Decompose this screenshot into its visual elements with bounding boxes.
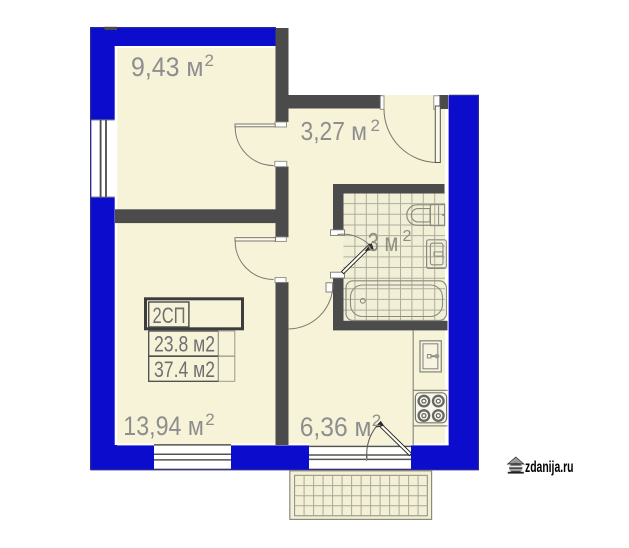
svg-text:2СП: 2СП <box>153 303 186 328</box>
svg-text:3,27 м: 3,27 м <box>301 116 368 146</box>
svg-text:2: 2 <box>205 410 214 429</box>
svg-text:9,43 м: 9,43 м <box>131 52 204 82</box>
svg-text:2: 2 <box>372 411 381 430</box>
svg-text:6,36 м: 6,36 м <box>300 412 372 442</box>
svg-text:2: 2 <box>371 116 380 135</box>
svg-text:2: 2 <box>205 51 214 70</box>
svg-text:2: 2 <box>403 228 412 245</box>
svg-text:13,94 м: 13,94 м <box>123 411 204 441</box>
svg-text:zdanija.ru: zdanija.ru <box>525 459 574 476</box>
svg-text:23.8 м2: 23.8 м2 <box>154 332 215 357</box>
svg-text:37.4 м2: 37.4 м2 <box>154 357 215 382</box>
svg-text:3 м: 3 м <box>368 227 399 257</box>
